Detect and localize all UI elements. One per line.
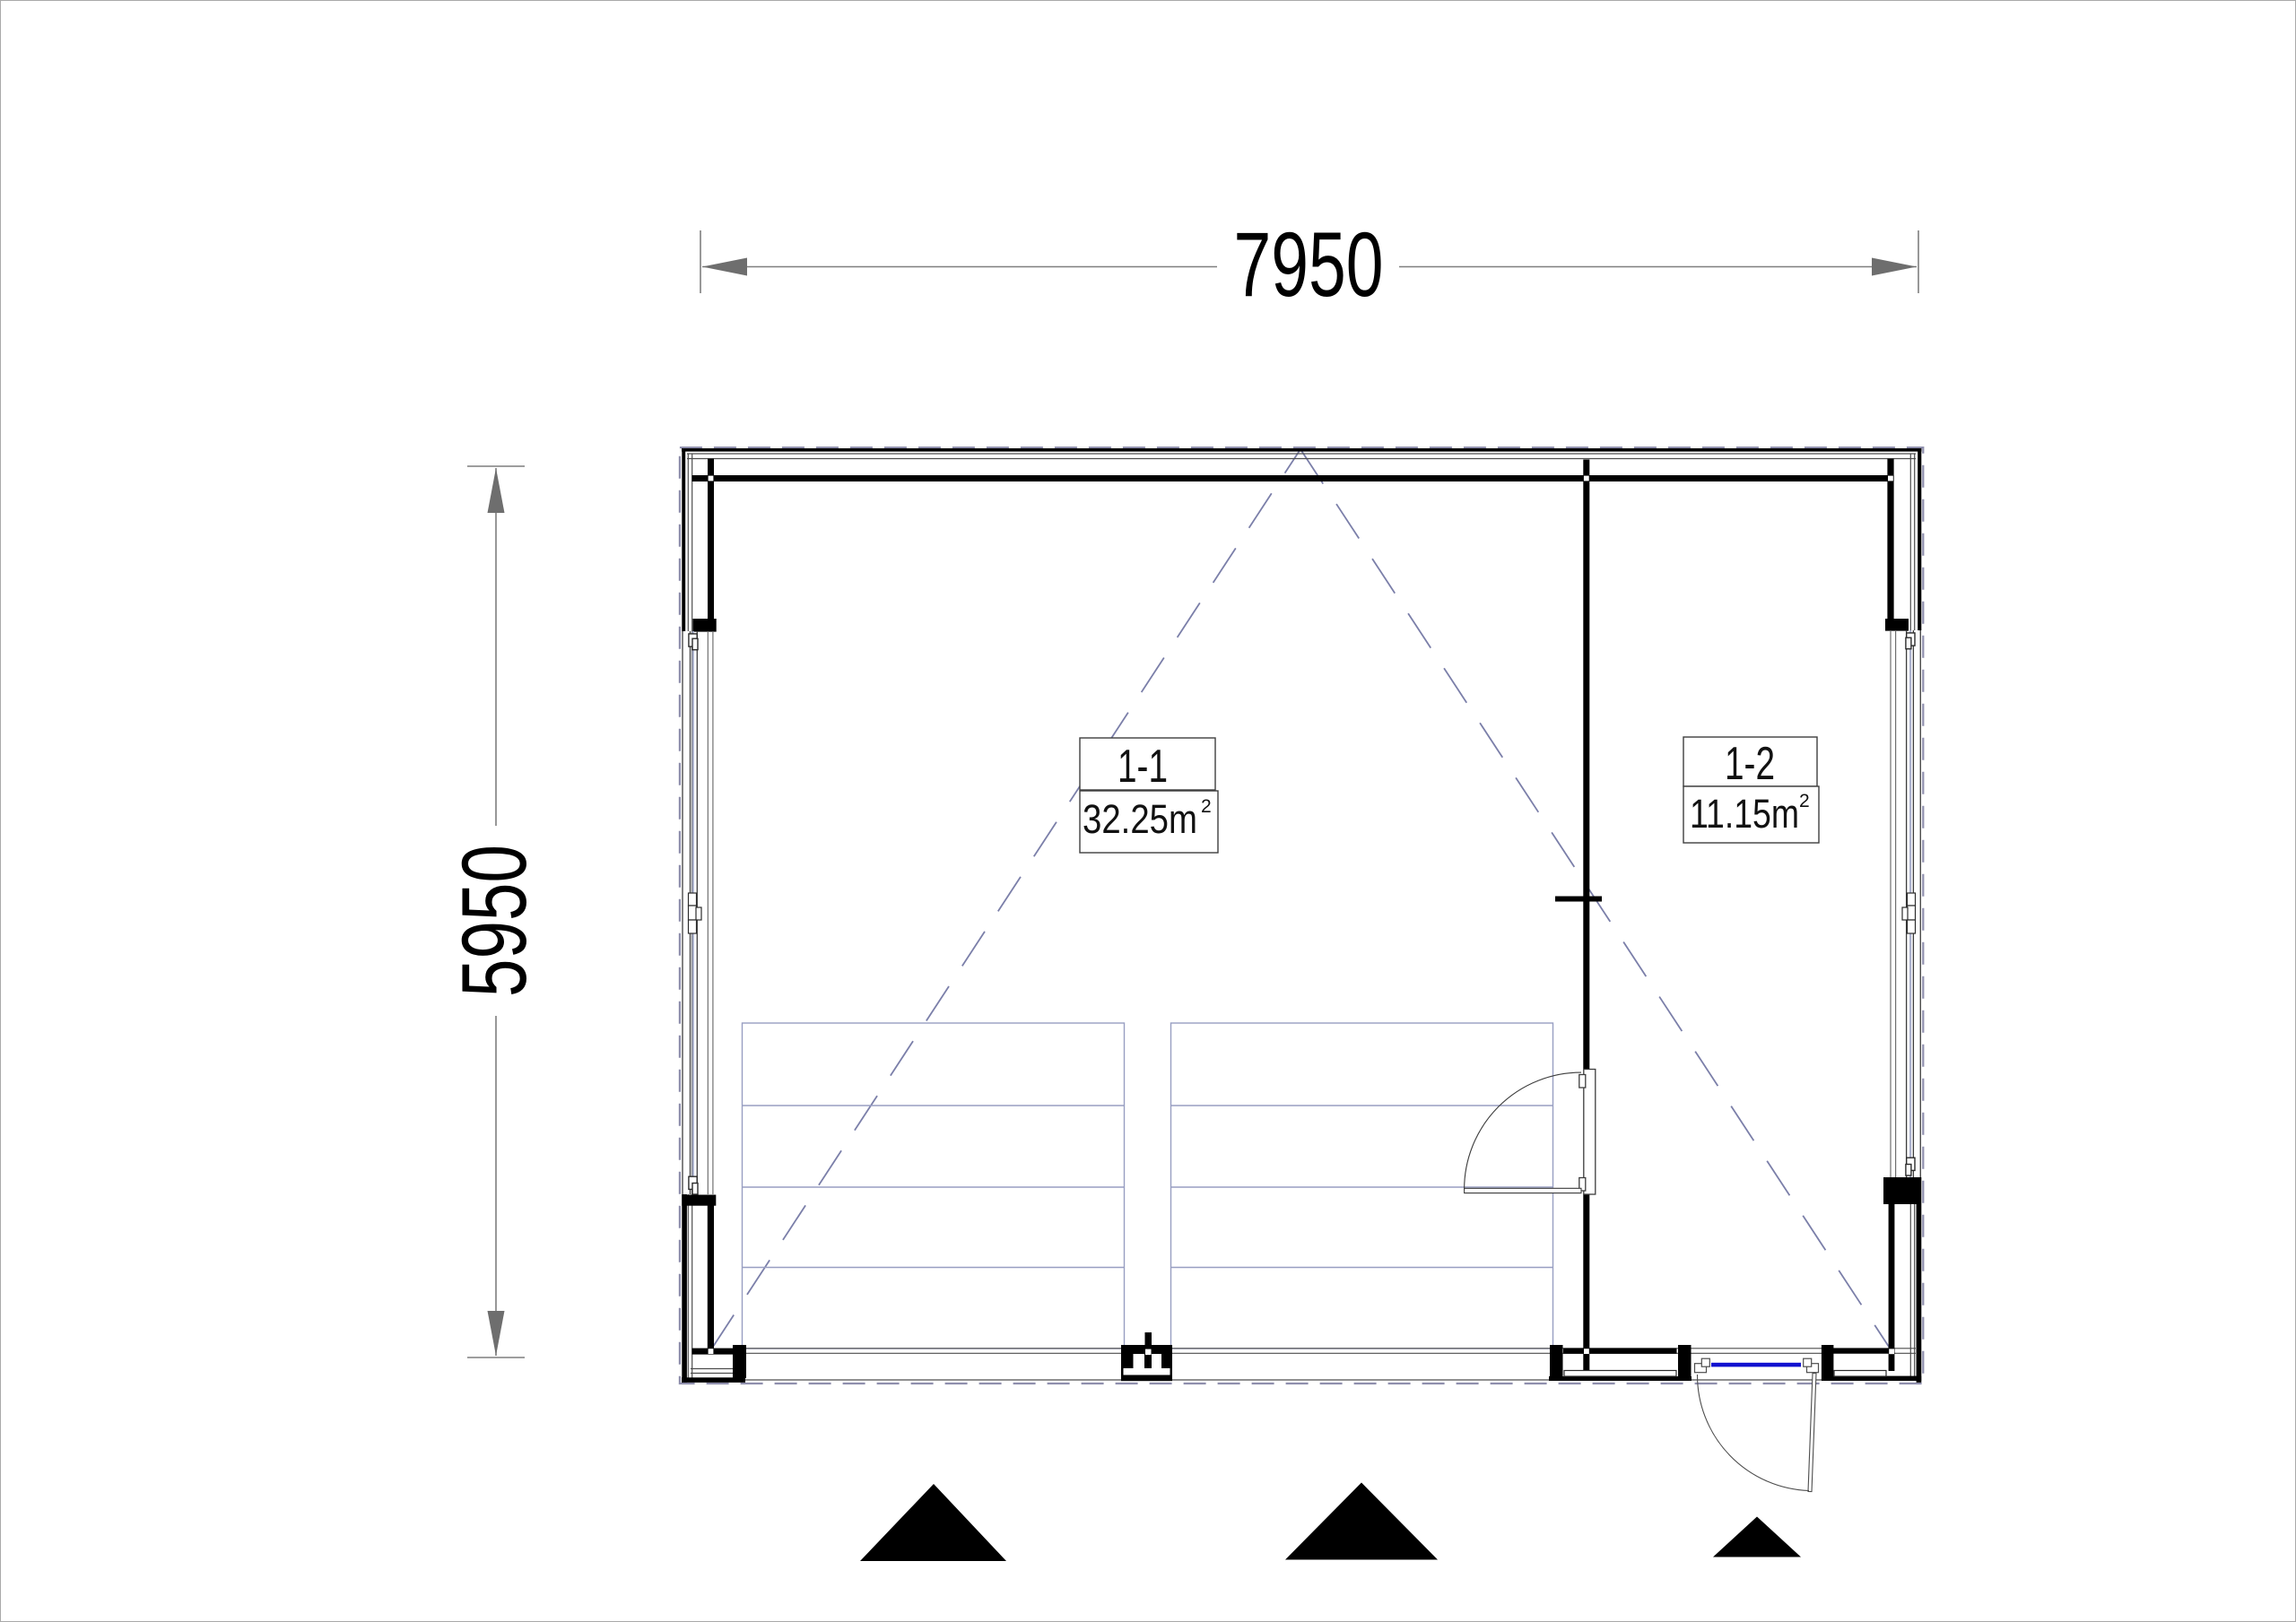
- svg-text:11.15m: 11.15m: [1690, 791, 1799, 837]
- svg-text:2: 2: [1799, 791, 1810, 811]
- svg-text:5950: 5950: [443, 845, 545, 997]
- svg-text:7950: 7950: [1234, 213, 1384, 316]
- svg-text:2: 2: [1201, 796, 1212, 817]
- svg-text:1-1: 1-1: [1118, 741, 1168, 793]
- svg-text:1-2: 1-2: [1725, 738, 1775, 790]
- svg-text:32.25m: 32.25m: [1083, 796, 1197, 842]
